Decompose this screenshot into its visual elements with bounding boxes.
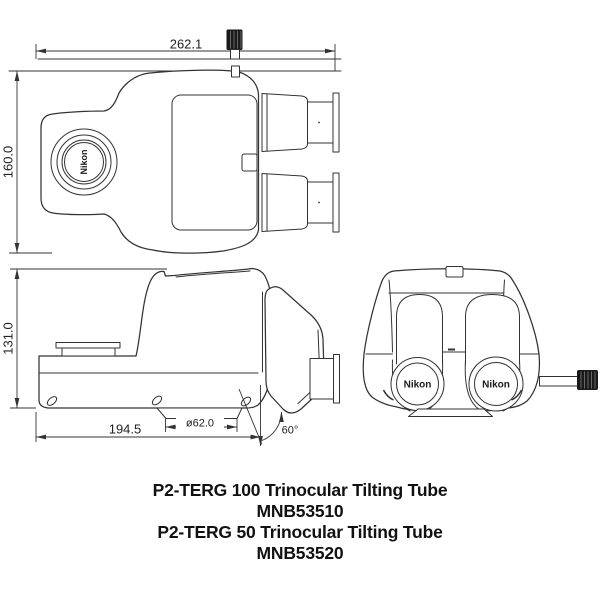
top-latch [446,267,463,278]
dovetail-plate-base [62,348,115,356]
dimension-port-diameter: ø62.0 [166,418,238,433]
dimension-label-side-depth: 194.5 [109,422,142,437]
latch-detail [242,154,257,171]
brand-label-eyepiece-right: Nikon [482,380,510,391]
eyepiece-socket [310,359,334,400]
tube-barrel [262,174,308,232]
screw-neck [231,50,240,60]
side-view: 131.0 194.5 ø62.0 60° [1,269,340,447]
tube-barrel [262,94,308,152]
technical-drawing-page: 262.1 Nikon [0,0,600,600]
center-mark [318,122,320,124]
product-name-1: P2-TERG 100 Trinocular Tilting Tube [0,480,600,501]
screw-shaft [232,66,240,77]
product-code-1: MNB53510 [0,501,600,522]
side-body-outline [39,269,272,409]
brand-label-lens: Nikon [79,149,89,174]
screw-shaft [540,377,578,387]
brand-label-eyepiece-left: Nikon [404,380,432,391]
dimension-label-tilt-angle: 60° [282,425,299,437]
tube-collar [308,102,334,143]
base-pedestal [409,409,493,417]
screw-knurled-head [578,371,598,390]
product-code-2: MNB53520 [0,543,600,564]
eyepiece-socket-flange [334,355,340,404]
front-view: Nikon Nikon [363,267,597,417]
dimension-label-port-diameter: ø62.0 [186,418,214,430]
product-name-2: P2-TERG 50 Trinocular Tilting Tube [0,522,600,543]
tube-collar [308,182,334,223]
angle-arc [262,412,282,441]
eyepiece-tube-upper [262,93,339,152]
dimension-label-top-height: 160.0 [1,146,16,179]
thumb-screw-icon [227,30,242,77]
eyepiece-arch-left [397,295,443,365]
screw-knurled-head [227,30,242,50]
tube-flange [333,93,339,152]
eyepiece-arch-right [466,295,520,365]
dimension-label-side-height: 131.0 [1,322,16,355]
dimension-top-width: 262.1 [36,37,335,72]
product-caption: P2-TERG 100 Trinocular Tilting Tube MNB5… [0,480,600,564]
top-view: 262.1 Nikon [1,30,342,253]
dovetail-plate-lip [56,343,120,349]
tube-flange [333,173,339,232]
center-mark [318,202,320,204]
clamp-screw-icon [540,371,598,390]
eyepiece-tube-lower [262,173,339,232]
dimension-label-top-width: 262.1 [170,37,203,52]
